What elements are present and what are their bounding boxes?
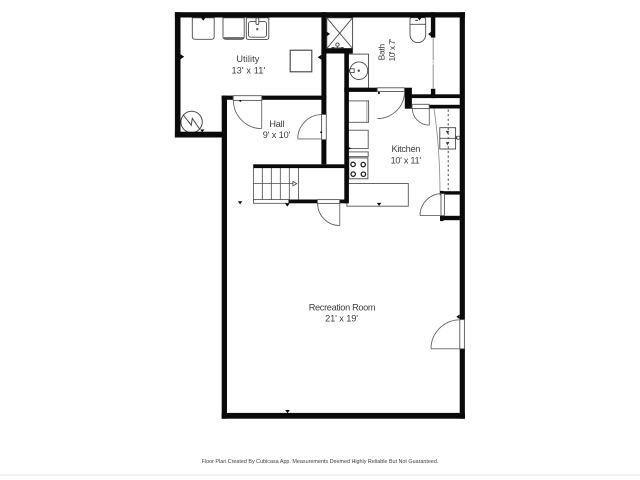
svg-text:10' x 7': 10' x 7' — [387, 39, 397, 62]
svg-text:Kitchen: Kitchen — [392, 144, 421, 154]
svg-text:13' x 11': 13' x 11' — [231, 66, 265, 76]
svg-text:Hall: Hall — [269, 119, 284, 129]
svg-text:Recreation Room: Recreation Room — [309, 302, 376, 312]
svg-text:9' x 10': 9' x 10' — [263, 130, 291, 140]
svg-text:Bath: Bath — [376, 44, 386, 61]
svg-text:Utility: Utility — [236, 54, 259, 64]
svg-text:Floor Plan Created By Cubicasa: Floor Plan Created By Cubicasa App. Meas… — [202, 459, 439, 465]
svg-text:10' x 11': 10' x 11' — [391, 156, 422, 166]
svg-text:21' x 19': 21' x 19' — [325, 314, 358, 324]
